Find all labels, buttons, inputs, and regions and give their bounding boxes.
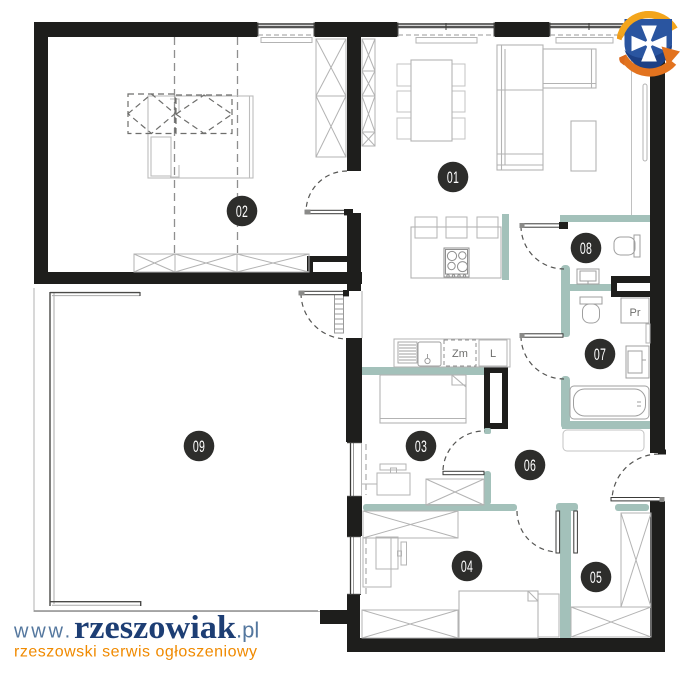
svg-text:02: 02: [236, 202, 248, 221]
svg-text:rzeszowski serwis ogłoszeniowy: rzeszowski serwis ogłoszeniowy: [14, 644, 258, 661]
svg-text:07: 07: [594, 345, 606, 364]
svg-text:06: 06: [524, 456, 536, 475]
svg-text:08: 08: [580, 239, 592, 258]
svg-text:01: 01: [447, 168, 459, 187]
svg-text:L: L: [490, 348, 496, 360]
svg-text:.pl: .pl: [236, 618, 259, 643]
svg-text:Pr: Pr: [630, 307, 641, 319]
svg-text:03: 03: [415, 437, 427, 456]
svg-text:09: 09: [193, 437, 205, 456]
svg-text:04: 04: [461, 557, 473, 576]
svg-text:Zm: Zm: [452, 348, 468, 360]
svg-text:05: 05: [590, 568, 602, 587]
svg-text:rzeszowiak: rzeszowiak: [74, 610, 237, 646]
svg-text:www.: www.: [13, 621, 73, 643]
